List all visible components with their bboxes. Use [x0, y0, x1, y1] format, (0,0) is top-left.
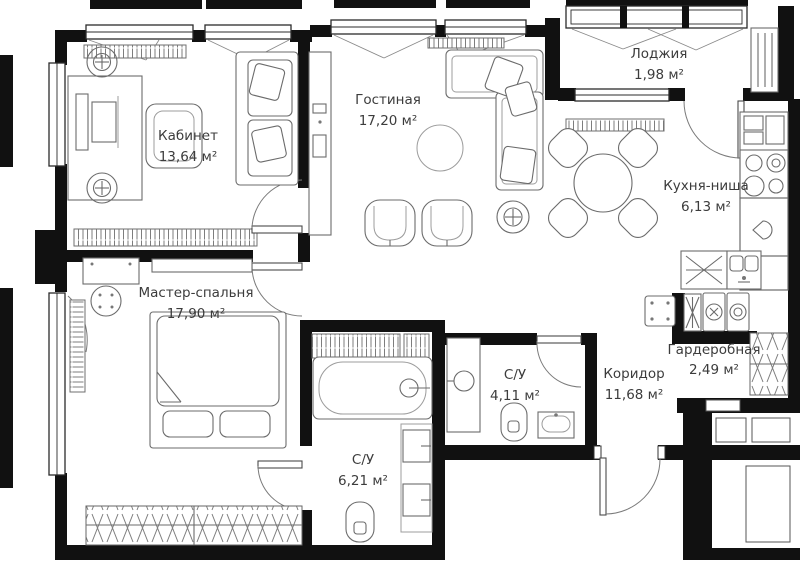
- double-sink-icon: [727, 251, 761, 289]
- room-area: 4,11 м²: [490, 388, 540, 404]
- radiator: [70, 300, 85, 392]
- wall-segment: [310, 320, 432, 332]
- toilet-icon: [501, 403, 527, 441]
- wall-segment: [446, 0, 530, 8]
- window: [86, 25, 193, 39]
- room-label-loggia: Лоджия 1,98 м²: [631, 46, 688, 83]
- room-label-living: Гостиная 17,20 м²: [355, 92, 421, 129]
- shower: [447, 338, 480, 432]
- room-area: 17,90 м²: [167, 306, 226, 322]
- room-area: 13,64 м²: [159, 149, 218, 165]
- armchair: [365, 200, 415, 246]
- door-entrance: [594, 446, 665, 515]
- wall-segment: [445, 445, 600, 460]
- wall-segment: [192, 30, 206, 42]
- bath-shelf: [312, 334, 400, 358]
- room-label-corridor: Коридор 11,68 м²: [603, 366, 664, 403]
- desk: [68, 76, 142, 200]
- radiator-loggia: [751, 28, 778, 92]
- bathtub: [313, 357, 432, 419]
- wall-segment: [658, 445, 800, 460]
- room-label-bath-large: С/У 6,21 м²: [338, 452, 388, 489]
- window-loggia-band: [566, 6, 747, 28]
- wall-segment: [581, 333, 597, 345]
- sink-icon: [403, 484, 431, 516]
- room-area: 6,13 м²: [681, 199, 731, 215]
- door-bedroom-hall: [252, 263, 302, 316]
- room-name: Лоджия: [631, 46, 688, 62]
- utility-niche: [645, 293, 749, 331]
- room-name: Коридор: [603, 366, 664, 382]
- sink-icon: [403, 430, 431, 462]
- wall-segment: [298, 233, 310, 262]
- shaft: [716, 418, 746, 442]
- armchair: [422, 200, 472, 246]
- wall-segment: [90, 0, 202, 9]
- room-label-wardrobe: Гардеробная 2,49 м²: [667, 342, 760, 378]
- room-area: 2,49 м²: [689, 362, 739, 378]
- shaft: [746, 466, 790, 542]
- radiator: [428, 38, 504, 48]
- floor-plan: Кабинет 13,64 м² Гостиная 17,20 м² Лоджи…: [0, 0, 800, 567]
- dryer-icon: [727, 293, 749, 331]
- office-sofa: [236, 52, 298, 185]
- wall-segment: [0, 288, 13, 488]
- washer-icon: [703, 293, 725, 331]
- wall-segment: [558, 88, 576, 101]
- window: [331, 20, 436, 34]
- room-label-bath-small: С/У 4,11 м²: [490, 367, 540, 404]
- wall-segment: [778, 6, 794, 101]
- bath-large-fixtures: [313, 357, 432, 542]
- sideboard: [309, 52, 331, 235]
- wall-segment: [566, 0, 748, 6]
- room-area: 1,98 м²: [634, 67, 684, 83]
- console: [83, 258, 139, 284]
- shaft: [752, 418, 790, 442]
- wall-segment: [310, 25, 332, 37]
- room-name: С/У: [352, 452, 374, 468]
- window: [575, 89, 669, 101]
- radiator: [566, 119, 664, 131]
- vanity: [401, 424, 432, 532]
- wall-segment: [55, 164, 67, 292]
- room-area: 17,20 м²: [359, 113, 418, 129]
- bedroom-furniture: [83, 258, 302, 545]
- room-name: Кабинет: [158, 128, 218, 144]
- dining-set: [544, 124, 662, 242]
- wall-segment: [300, 320, 312, 446]
- door-balcony: [684, 101, 744, 158]
- room-area: 11,68 м²: [605, 387, 664, 403]
- wall-segment: [55, 545, 445, 560]
- door-office: [252, 180, 302, 233]
- drying-rack-icon: [684, 294, 701, 331]
- door-ensuite: [258, 461, 302, 510]
- office-furniture: [68, 47, 298, 203]
- wall-segment: [525, 25, 547, 37]
- wall-segment: [55, 473, 67, 557]
- wall-segment: [35, 230, 56, 284]
- window: [205, 25, 291, 39]
- low-cabinet: [74, 229, 257, 246]
- corner-sofa: [446, 50, 543, 190]
- folding-table-icon: [681, 251, 727, 289]
- wall-segment: [788, 99, 800, 413]
- wall-segment: [298, 42, 310, 188]
- room-label-kitchen: Кухня-ниша 6,13 м²: [663, 178, 749, 215]
- sink-icon: [538, 412, 574, 438]
- toilet-icon: [346, 502, 374, 542]
- rug: [417, 125, 463, 171]
- wall-segment: [0, 55, 13, 167]
- floor-plan-drawing: Кабинет 13,64 м² Гостиная 17,20 м² Лоджи…: [0, 0, 800, 567]
- shaft: [706, 400, 740, 411]
- door-bath-small: [537, 336, 581, 387]
- wall-segment: [585, 345, 597, 445]
- bath-shelf: [404, 334, 429, 358]
- bed: [150, 312, 286, 448]
- room-name: Гостиная: [355, 92, 421, 108]
- room-name: Мастер-спальня: [138, 285, 253, 301]
- window: [445, 20, 526, 34]
- wall-segment: [206, 0, 302, 9]
- ceiling-lamp-icon: [497, 201, 529, 233]
- room-name: Кухня-ниша: [663, 178, 749, 194]
- wall-segment: [668, 88, 685, 101]
- wall-segment: [545, 18, 560, 100]
- hall-table: [645, 296, 675, 326]
- wardrobe-strip: [86, 506, 302, 545]
- wall-segment: [334, 0, 436, 8]
- dining-table: [574, 154, 632, 212]
- tv-stand: [152, 259, 252, 272]
- room-area: 6,21 м²: [338, 473, 388, 489]
- side-table: [91, 286, 121, 316]
- living-furniture: [309, 50, 543, 246]
- wall-segment: [712, 548, 800, 560]
- wall-segment: [55, 30, 87, 42]
- room-name: Гардеробная: [667, 342, 760, 358]
- room-name: С/У: [504, 367, 526, 383]
- wall-segment: [290, 30, 312, 42]
- window: [49, 63, 65, 166]
- wall-segment: [432, 320, 445, 560]
- wall-segment: [683, 413, 712, 560]
